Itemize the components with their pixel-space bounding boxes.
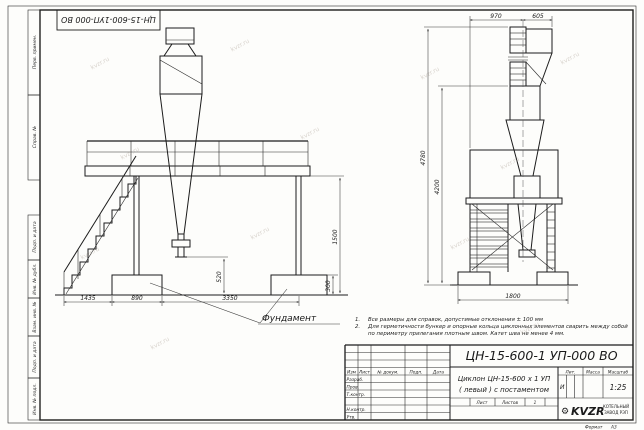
stamp-podp-data-2: Подп. и дата xyxy=(32,341,38,372)
top-designation-stamp: ЦН-15-600-1УП-000 ВО xyxy=(57,10,160,30)
sheets-value: 1 xyxy=(534,400,537,406)
rev-col-date: Дата xyxy=(432,369,444,375)
company-logo: KVZR xyxy=(571,405,604,418)
stamp-inv-podl: Инв. № подл. xyxy=(32,383,38,415)
foundation-label: Фундамент xyxy=(262,314,317,324)
rev-col-doc: № докум. xyxy=(376,369,398,375)
row-razrab: Разраб. xyxy=(347,377,364,383)
dim-total-height: 4780 xyxy=(420,150,427,165)
company-name-line2: ЗАВОД РЭП xyxy=(604,410,628,415)
company-name-line1: КОТЕЛЬНЫЙ xyxy=(603,404,629,409)
top-designation-text: ЦН-15-600-1УП-000 ВО xyxy=(61,15,156,24)
side-view xyxy=(450,20,578,285)
dim-outlet-height: 520 xyxy=(216,271,223,283)
side-view-dimensions: 970 605 4780 4200 1800 xyxy=(420,13,568,304)
row-prov: Пров. xyxy=(347,384,360,390)
title-name-line2: ( левый ) с постаментом xyxy=(459,386,550,394)
format-value: А3 xyxy=(610,425,617,430)
dim-cyclone-height: 4200 xyxy=(434,179,441,194)
dim-inlet-offset-left: 970 xyxy=(490,13,502,20)
title-name-line1: Циклон ЦН-15-600 х 1 УП xyxy=(458,375,551,383)
format-strip: Формат А3 xyxy=(585,425,617,430)
stamp-sprav-no: Справ. № xyxy=(32,126,38,149)
scale-header: Масштаб xyxy=(608,369,629,375)
lit-header: Лит. xyxy=(565,369,576,375)
title-block: Изм Лист № докум. Подп. Дата Разраб. Про… xyxy=(345,345,633,420)
dim-foundation-spacing: 3350 xyxy=(222,295,237,302)
row-utv: Утв. xyxy=(347,414,356,420)
dim-stairs-run: 1435 xyxy=(80,295,95,302)
note-2: 2. Для герметичности бункер и опорные ко… xyxy=(352,324,628,338)
format-label: Формат xyxy=(585,425,603,430)
dim-foundation-width: 890 xyxy=(131,295,143,302)
sheets-label: Листов xyxy=(501,400,519,406)
note-1-text: Все размеры для справок, допустимые откл… xyxy=(368,317,628,324)
lit-value: И xyxy=(560,384,565,391)
notes-block: 1. Все размеры для справок, допустимые о… xyxy=(352,317,628,338)
dim-inlet-offset-right: 605 xyxy=(532,13,544,20)
cad-drawing-svg: Перв. примен. Справ. № Подп. и дата Инв.… xyxy=(0,0,644,430)
rev-col-izm: Изм xyxy=(347,369,356,375)
rev-col-sign: Подп. xyxy=(409,369,422,375)
row-tkontr: Т.контр. xyxy=(347,392,366,398)
company-gear-icon: ⚙ xyxy=(561,407,569,417)
front-view-dimensions: 520 300 1500 1435 890 3350 Фундамент xyxy=(64,176,344,324)
front-view xyxy=(55,28,348,295)
scale-value: 1:25 xyxy=(610,383,627,392)
dim-foundation-height: 300 xyxy=(325,280,332,292)
rev-col-list: Лист xyxy=(358,369,370,375)
note-2-text: Для герметичности бункер и опорные кольц… xyxy=(368,324,628,338)
dim-platform-height: 1500 xyxy=(332,229,339,244)
note-1: 1. Все размеры для справок, допустимые о… xyxy=(352,317,628,324)
mass-header: Масса xyxy=(586,369,600,375)
stamp-perv-primen: Перв. примен. xyxy=(32,35,38,70)
note-2-number: 2. xyxy=(352,324,368,338)
stamp-podp-data-1: Подп. и дата xyxy=(32,221,38,252)
row-nkontr: Н.контр. xyxy=(347,407,366,413)
stamp-inv-dubl: Инв. № дубл. xyxy=(32,263,38,294)
drawing-sheet: Перв. примен. Справ. № Подп. и дата Инв.… xyxy=(0,0,644,430)
note-1-number: 1. xyxy=(352,317,368,324)
sheet-label: Лист xyxy=(476,400,488,406)
stamp-vzam-inv: Взам. инв. № xyxy=(32,301,38,332)
dim-postament-width: 1800 xyxy=(505,293,520,300)
margin-stamp-column: Перв. примен. Справ. № Подп. и дата Инв.… xyxy=(28,10,40,420)
title-designation: ЦН-15-600-1 УП-000 ВО xyxy=(465,348,617,363)
